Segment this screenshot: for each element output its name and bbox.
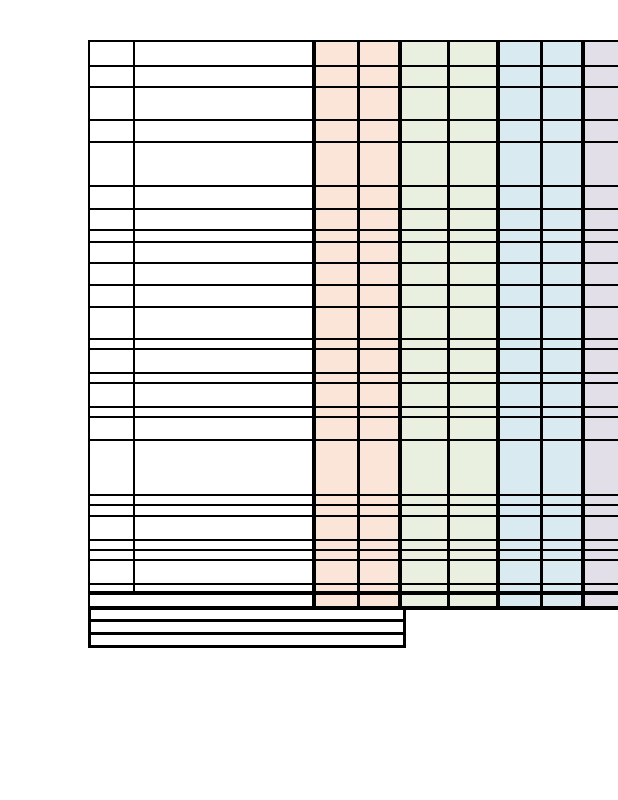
cell-r9-c1[interactable] [90,243,135,264]
cell-r5-c9[interactable] [585,143,618,187]
cell-r8-c5[interactable] [402,231,450,243]
cell-r10-c8[interactable] [543,264,585,286]
cell-r19-c1[interactable] [90,441,135,496]
cell-r12-c8[interactable] [543,308,585,340]
page [0,0,618,800]
cell-r23-c5[interactable] [402,541,450,551]
cell-r2-c7[interactable] [500,67,543,88]
cell-r22-c4[interactable] [360,517,402,541]
cell-r2-c9[interactable] [585,67,618,88]
cell-r6-c5[interactable] [402,187,450,210]
cell-r12-c4[interactable] [360,308,402,340]
cell-r10-c7[interactable] [500,264,543,286]
cell-r17-c7[interactable] [500,408,543,418]
cell-r9-c9[interactable] [585,243,618,264]
cell-r20-c9[interactable] [585,496,618,506]
cell-r6-c8[interactable] [543,187,585,210]
cell-r16-c5[interactable] [402,384,450,408]
cell-r24-c9[interactable] [585,551,618,561]
cell-r19-c7[interactable] [500,441,543,496]
total-row-cell-c6[interactable] [450,595,500,610]
cell-r19-c5[interactable] [402,441,450,496]
cell-r9-c3[interactable] [316,243,360,264]
cell-r9-c4[interactable] [360,243,402,264]
cell-r24-c5[interactable] [402,551,450,561]
cell-r4-c1[interactable] [90,121,135,143]
total-row-cell-c8[interactable] [543,595,585,610]
cell-r19-c4[interactable] [360,441,402,496]
cell-r1-c6[interactable] [450,42,500,67]
cell-r24-c3[interactable] [316,551,360,561]
cell-r2-c6[interactable] [450,67,500,88]
cell-r16-c3[interactable] [316,384,360,408]
cell-r23-c2[interactable] [135,541,316,551]
cell-r18-c3[interactable] [316,418,360,441]
cell-r17-c5[interactable] [402,408,450,418]
cell-r20-c7[interactable] [500,496,543,506]
cell-r6-c6[interactable] [450,187,500,210]
cell-r17-c4[interactable] [360,408,402,418]
cell-r9-c5[interactable] [402,243,450,264]
cell-r8-c1[interactable] [90,231,135,243]
cell-r20-c1[interactable] [90,496,135,506]
cell-r1-c2[interactable] [135,42,316,67]
cell-r3-c2[interactable] [135,88,316,121]
cell-r4-c5[interactable] [402,121,450,143]
cell-r14-c6[interactable] [450,350,500,374]
cell-r4-c3[interactable] [316,121,360,143]
cell-r3-c7[interactable] [500,88,543,121]
cell-r11-c9[interactable] [585,286,618,308]
cell-r8-c6[interactable] [450,231,500,243]
cell-r22-c1[interactable] [90,517,135,541]
cell-r5-c4[interactable] [360,143,402,187]
cell-r10-c9[interactable] [585,264,618,286]
cell-r21-c4[interactable] [360,506,402,517]
cell-r13-c7[interactable] [500,340,543,350]
cell-r17-c6[interactable] [450,408,500,418]
cell-r17-c1[interactable] [90,408,135,418]
cell-r13-c8[interactable] [543,340,585,350]
cell-r4-c9[interactable] [585,121,618,143]
cell-r9-c6[interactable] [450,243,500,264]
cell-r24-c6[interactable] [450,551,500,561]
total-row-cell-c3[interactable] [316,595,360,610]
cell-r11-c4[interactable] [360,286,402,308]
cell-r13-c5[interactable] [402,340,450,350]
cell-r23-c1[interactable] [90,541,135,551]
cell-r6-c2[interactable] [135,187,316,210]
cell-r25-c5[interactable] [402,561,450,585]
cell-r18-c7[interactable] [500,418,543,441]
cell-r18-c5[interactable] [402,418,450,441]
cell-r3-c9[interactable] [585,88,618,121]
cell-r15-c9[interactable] [585,374,618,384]
cell-r5-c2[interactable] [135,143,316,187]
cell-r1-c8[interactable] [543,42,585,67]
cell-r2-c2[interactable] [135,67,316,88]
cell-r13-c1[interactable] [90,340,135,350]
cell-r26-c1[interactable] [90,585,135,595]
cell-r11-c1[interactable] [90,286,135,308]
cell-r8-c3[interactable] [316,231,360,243]
cell-r4-c8[interactable] [543,121,585,143]
cell-r26-c8[interactable] [543,585,585,595]
cell-r20-c2[interactable] [135,496,316,506]
cell-r7-c7[interactable] [500,210,543,231]
cell-r25-c8[interactable] [543,561,585,585]
cell-r18-c8[interactable] [543,418,585,441]
footer-rows [88,610,406,648]
cell-r26-c9[interactable] [585,585,618,595]
cell-r7-c9[interactable] [585,210,618,231]
cell-r14-c7[interactable] [500,350,543,374]
cell-r9-c2[interactable] [135,243,316,264]
cell-r14-c3[interactable] [316,350,360,374]
cell-r17-c8[interactable] [543,408,585,418]
cell-r6-c3[interactable] [316,187,360,210]
cell-r5-c7[interactable] [500,143,543,187]
cell-r12-c6[interactable] [450,308,500,340]
cell-r5-c8[interactable] [543,143,585,187]
cell-r26-c4[interactable] [360,585,402,595]
cell-r26-c2[interactable] [135,585,316,595]
cell-r13-c6[interactable] [450,340,500,350]
cell-r8-c8[interactable] [543,231,585,243]
cell-r26-c5[interactable] [402,585,450,595]
cell-r11-c5[interactable] [402,286,450,308]
cell-r22-c8[interactable] [543,517,585,541]
cell-r23-c9[interactable] [585,541,618,551]
cell-r19-c9[interactable] [585,441,618,496]
cell-r18-c2[interactable] [135,418,316,441]
cell-r6-c7[interactable] [500,187,543,210]
cell-r5-c6[interactable] [450,143,500,187]
cell-r14-c2[interactable] [135,350,316,374]
cell-r3-c1[interactable] [90,88,135,121]
cell-r22-c3[interactable] [316,517,360,541]
cell-r20-c4[interactable] [360,496,402,506]
cell-r2-c3[interactable] [316,67,360,88]
cell-r14-c5[interactable] [402,350,450,374]
cell-r3-c4[interactable] [360,88,402,121]
cell-r1-c3[interactable] [316,42,360,67]
cell-r12-c9[interactable] [585,308,618,340]
main-table [88,40,618,610]
cell-r4-c2[interactable] [135,121,316,143]
total-row-cell-c4[interactable] [360,595,402,610]
cell-r16-c1[interactable] [90,384,135,408]
cell-r21-c8[interactable] [543,506,585,517]
cell-r11-c2[interactable] [135,286,316,308]
cell-r18-c9[interactable] [585,418,618,441]
cell-r10-c3[interactable] [316,264,360,286]
cell-r20-c3[interactable] [316,496,360,506]
cell-r6-c9[interactable] [585,187,618,210]
cell-r16-c6[interactable] [450,384,500,408]
cell-r12-c5[interactable] [402,308,450,340]
cell-r4-c4[interactable] [360,121,402,143]
cell-r22-c6[interactable] [450,517,500,541]
cell-r7-c4[interactable] [360,210,402,231]
cell-r10-c5[interactable] [402,264,450,286]
cell-r11-c7[interactable] [500,286,543,308]
cell-r10-c6[interactable] [450,264,500,286]
cell-r14-c4[interactable] [360,350,402,374]
cell-r22-c9[interactable] [585,517,618,541]
cell-r21-c2[interactable] [135,506,316,517]
cell-r15-c8[interactable] [543,374,585,384]
cell-r12-c2[interactable] [135,308,316,340]
cell-r19-c6[interactable] [450,441,500,496]
cell-r13-c3[interactable] [316,340,360,350]
cell-r11-c3[interactable] [316,286,360,308]
cell-r23-c6[interactable] [450,541,500,551]
cell-r1-c1[interactable] [90,42,135,67]
cell-r6-c4[interactable] [360,187,402,210]
cell-r9-c8[interactable] [543,243,585,264]
cell-r17-c9[interactable] [585,408,618,418]
cell-r7-c6[interactable] [450,210,500,231]
cell-r4-c6[interactable] [450,121,500,143]
cell-r14-c1[interactable] [90,350,135,374]
cell-r6-c1[interactable] [90,187,135,210]
cell-r22-c5[interactable] [402,517,450,541]
cell-r13-c4[interactable] [360,340,402,350]
total-row-merged-cell[interactable] [90,595,316,610]
cell-r7-c2[interactable] [135,210,316,231]
cell-r25-c2[interactable] [135,561,316,585]
cell-r12-c1[interactable] [90,308,135,340]
cell-r7-c8[interactable] [543,210,585,231]
cell-r21-c9[interactable] [585,506,618,517]
cell-r8-c9[interactable] [585,231,618,243]
cell-r15-c5[interactable] [402,374,450,384]
cell-r25-c7[interactable] [500,561,543,585]
cell-r5-c3[interactable] [316,143,360,187]
cell-r15-c2[interactable] [135,374,316,384]
cell-r5-c1[interactable] [90,143,135,187]
total-row-cell-c5[interactable] [402,595,450,610]
cell-r9-c7[interactable] [500,243,543,264]
cell-r7-c3[interactable] [316,210,360,231]
cell-r8-c7[interactable] [500,231,543,243]
cell-r3-c6[interactable] [450,88,500,121]
cell-r16-c7[interactable] [500,384,543,408]
total-row-cell-c7[interactable] [500,595,543,610]
cell-r18-c6[interactable] [450,418,500,441]
cell-r25-c1[interactable] [90,561,135,585]
cell-r1-c9[interactable] [585,42,618,67]
cell-r19-c8[interactable] [543,441,585,496]
cell-r26-c6[interactable] [450,585,500,595]
footer-row-3[interactable] [88,635,406,648]
cell-r11-c8[interactable] [543,286,585,308]
cell-r12-c7[interactable] [500,308,543,340]
cell-r8-c4[interactable] [360,231,402,243]
total-row-cell-c9[interactable] [585,595,618,610]
cell-r18-c4[interactable] [360,418,402,441]
cell-r10-c2[interactable] [135,264,316,286]
cell-r10-c1[interactable] [90,264,135,286]
cell-r21-c1[interactable] [90,506,135,517]
cell-r16-c4[interactable] [360,384,402,408]
cell-r23-c7[interactable] [500,541,543,551]
cell-r20-c6[interactable] [450,496,500,506]
cell-r7-c5[interactable] [402,210,450,231]
cell-r3-c5[interactable] [402,88,450,121]
cell-r26-c7[interactable] [500,585,543,595]
cell-r17-c3[interactable] [316,408,360,418]
cell-r21-c6[interactable] [450,506,500,517]
cell-r19-c3[interactable] [316,441,360,496]
cell-r14-c8[interactable] [543,350,585,374]
cell-r16-c2[interactable] [135,384,316,408]
cell-r8-c2[interactable] [135,231,316,243]
cell-r3-c3[interactable] [316,88,360,121]
cell-r15-c1[interactable] [90,374,135,384]
footer-row-2[interactable] [88,622,406,635]
cell-r21-c5[interactable] [402,506,450,517]
cell-r1-c4[interactable] [360,42,402,67]
cell-r24-c7[interactable] [500,551,543,561]
cell-r25-c9[interactable] [585,561,618,585]
cell-r24-c4[interactable] [360,551,402,561]
cell-r12-c3[interactable] [316,308,360,340]
cell-r21-c7[interactable] [500,506,543,517]
cell-r26-c3[interactable] [316,585,360,595]
cell-r17-c2[interactable] [135,408,316,418]
cell-r24-c1[interactable] [90,551,135,561]
cell-r2-c8[interactable] [543,67,585,88]
cell-r25-c3[interactable] [316,561,360,585]
cell-r3-c8[interactable] [543,88,585,121]
cell-r23-c3[interactable] [316,541,360,551]
cell-r15-c7[interactable] [500,374,543,384]
cell-r20-c8[interactable] [543,496,585,506]
cell-r1-c5[interactable] [402,42,450,67]
cell-r10-c4[interactable] [360,264,402,286]
cell-r23-c8[interactable] [543,541,585,551]
cell-r7-c1[interactable] [90,210,135,231]
cell-r16-c9[interactable] [585,384,618,408]
cell-r2-c4[interactable] [360,67,402,88]
cell-r23-c4[interactable] [360,541,402,551]
cell-r13-c9[interactable] [585,340,618,350]
cell-r15-c3[interactable] [316,374,360,384]
cell-r24-c8[interactable] [543,551,585,561]
cell-r15-c4[interactable] [360,374,402,384]
cell-r2-c1[interactable] [90,67,135,88]
cell-r14-c9[interactable] [585,350,618,374]
cell-r20-c5[interactable] [402,496,450,506]
cell-r24-c2[interactable] [135,551,316,561]
cell-r18-c1[interactable] [90,418,135,441]
cell-r1-c7[interactable] [500,42,543,67]
cell-r25-c4[interactable] [360,561,402,585]
cell-r19-c2[interactable] [135,441,316,496]
cell-r5-c5[interactable] [402,143,450,187]
cell-r4-c7[interactable] [500,121,543,143]
cell-r16-c8[interactable] [543,384,585,408]
cell-r21-c3[interactable] [316,506,360,517]
footer-row-1[interactable] [88,610,406,622]
cell-r15-c6[interactable] [450,374,500,384]
cell-r11-c6[interactable] [450,286,500,308]
cell-r22-c2[interactable] [135,517,316,541]
cell-r2-c5[interactable] [402,67,450,88]
cell-r13-c2[interactable] [135,340,316,350]
cell-r25-c6[interactable] [450,561,500,585]
cell-r22-c7[interactable] [500,517,543,541]
